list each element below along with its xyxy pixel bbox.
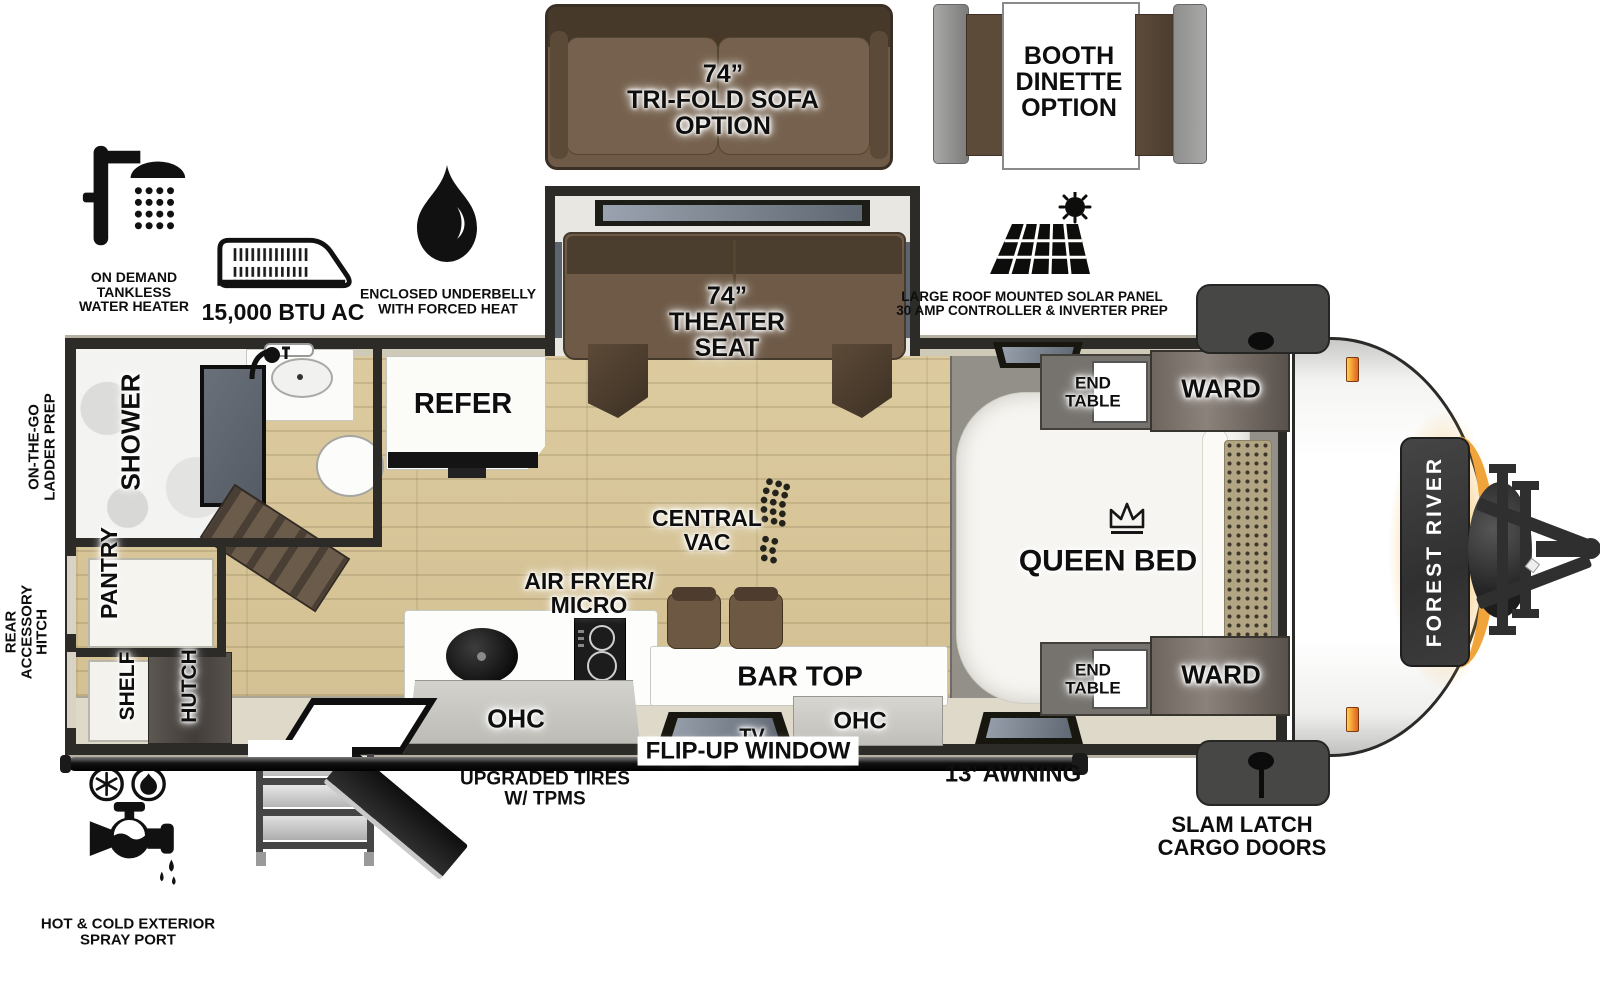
cargo-latch-stem: [1259, 768, 1264, 798]
rear-wall-window-lower: [67, 652, 76, 728]
step-tread-3: [263, 816, 367, 840]
bar-stool-left: [667, 593, 721, 649]
ward-bottom-label: WARD: [1181, 661, 1260, 688]
pantry-wall-right: [217, 547, 226, 657]
ladder-prep-label: ON-THE-GOLADDER PREP: [26, 393, 57, 501]
forest-river-badge: FOREST RIVER: [1400, 437, 1470, 667]
dinette-seat-left: [966, 14, 1004, 156]
ac-label: 15,000 BTU AC: [202, 301, 365, 325]
rv-floorplan: 74”TRI-FOLD SOFAOPTION BOOTHDINETTEOPTIO…: [0, 0, 1600, 981]
crossbar-cap-3: [1512, 481, 1539, 490]
cargo-door-top: [1196, 284, 1330, 354]
sink-drain: [477, 652, 486, 661]
hutch-label: HUTCH: [179, 649, 201, 723]
flip-up-window-label: FLIP-UP WINDOW: [638, 740, 859, 765]
dinette-bench-left: [933, 4, 969, 164]
queen-bed-label: QUEEN BED: [1019, 545, 1197, 576]
burner-large: [587, 651, 617, 681]
slide-rear-window: [595, 200, 870, 226]
awning-rail-left-cap: [60, 755, 71, 773]
stool-back: [734, 587, 778, 601]
crown-icon: [1104, 498, 1150, 540]
step-foot-right: [364, 852, 374, 866]
pantry-label: PANTRY: [98, 527, 122, 619]
coupler-tip: [1580, 538, 1600, 559]
crossbar-cap-1: [1489, 464, 1516, 473]
kitchen-sink: [446, 628, 518, 684]
awning-label: 13’ AWNING: [945, 763, 1081, 788]
ohc-bar-label: OHC: [833, 710, 886, 735]
tankless-water-heater-icon: [78, 142, 190, 254]
spray-port-label: HOT & COLD EXTERIORSPRAY PORT: [41, 916, 215, 947]
sofa-arm-right: [870, 31, 888, 159]
central-vac-label: CENTRALVAC: [652, 507, 762, 555]
showerhead-mini-icon: [244, 343, 290, 383]
end-table-top-label: ENDTABLE: [1065, 374, 1120, 409]
stool-back: [672, 587, 716, 601]
marker-light-bottom: [1346, 707, 1359, 732]
awning-window-cutout: [975, 712, 1083, 744]
furnace-flame-icon: [412, 165, 482, 267]
tongue-crossbar-2: [1520, 487, 1531, 613]
theater-seat-label: 74”THEATERSEAT: [669, 283, 785, 361]
solar-label: LARGE ROOF MOUNTED SOLAR PANEL30 AMP CON…: [896, 290, 1168, 318]
dinette-option-label: BOOTHDINETTEOPTION: [1016, 43, 1123, 121]
bar-stool-right: [729, 593, 783, 649]
crossbar-cap-2: [1489, 626, 1516, 635]
window-glass: [986, 718, 1072, 739]
end-table-bottom-label: ENDTABLE: [1065, 661, 1120, 696]
refrigerator-base: [388, 452, 538, 468]
refrigerator-vent: [448, 468, 486, 478]
ward-top-label: WARD: [1181, 375, 1260, 402]
rear-wall-window-upper: [67, 556, 76, 634]
sofa-option-label: 74”TRI-FOLD SOFAOPTION: [627, 61, 819, 139]
water-heater-label: ON DEMANDTANKLESSWATER HEATER: [79, 270, 189, 314]
sofa-arm-left: [550, 31, 568, 159]
step-foot-left: [256, 852, 266, 866]
bathroom-wall-right: [373, 349, 382, 547]
bed-headboard: [1224, 440, 1272, 662]
crossbar-cap-4: [1512, 609, 1539, 618]
cooktop-knobs: [578, 627, 584, 647]
cargo-door-bottom: [1196, 740, 1330, 806]
pantry-wall-bottom: [76, 648, 226, 657]
tongue-crossbar-1: [1497, 470, 1508, 630]
shelf-label: SHELF: [117, 652, 139, 721]
entry-opening: [248, 740, 352, 757]
slide-side-window-left: [555, 242, 562, 338]
cooktop: [574, 618, 626, 684]
air-fryer-label: AIR FRYER/MICRO: [524, 570, 654, 618]
step-bar-2: [263, 809, 367, 816]
spray-port-icon: [84, 766, 206, 886]
bath-sink-drain: [297, 374, 303, 380]
marker-light-top: [1346, 357, 1359, 382]
cargo-latch: [1248, 332, 1274, 350]
tires-label: UPGRADED TIRESW/ TPMS: [460, 769, 630, 809]
ohc-kitchen-label: OHC: [487, 705, 545, 732]
ac-unit-icon: [210, 232, 358, 294]
rear-hitch-label: REARACCESSORYHITCH: [4, 585, 51, 679]
underbelly-label: ENCLOSED UNDERBELLYWITH FORCED HEAT: [360, 286, 536, 315]
solar-panel-icon: [980, 192, 1095, 292]
shower-label: SHOWER: [117, 374, 144, 491]
slide-rear-window-glass: [603, 205, 862, 221]
cargo-doors-label: SLAM LATCHCARGO DOORS: [1158, 814, 1327, 860]
refer-label: REFER: [414, 389, 512, 419]
dinette-seat-right: [1135, 14, 1177, 156]
step-bar-3: [263, 842, 367, 849]
burner-small: [589, 625, 615, 651]
dinette-bench-right: [1173, 4, 1207, 164]
brand-name: FOREST RIVER: [1423, 456, 1447, 647]
bar-top-label: BAR TOP: [737, 661, 863, 690]
